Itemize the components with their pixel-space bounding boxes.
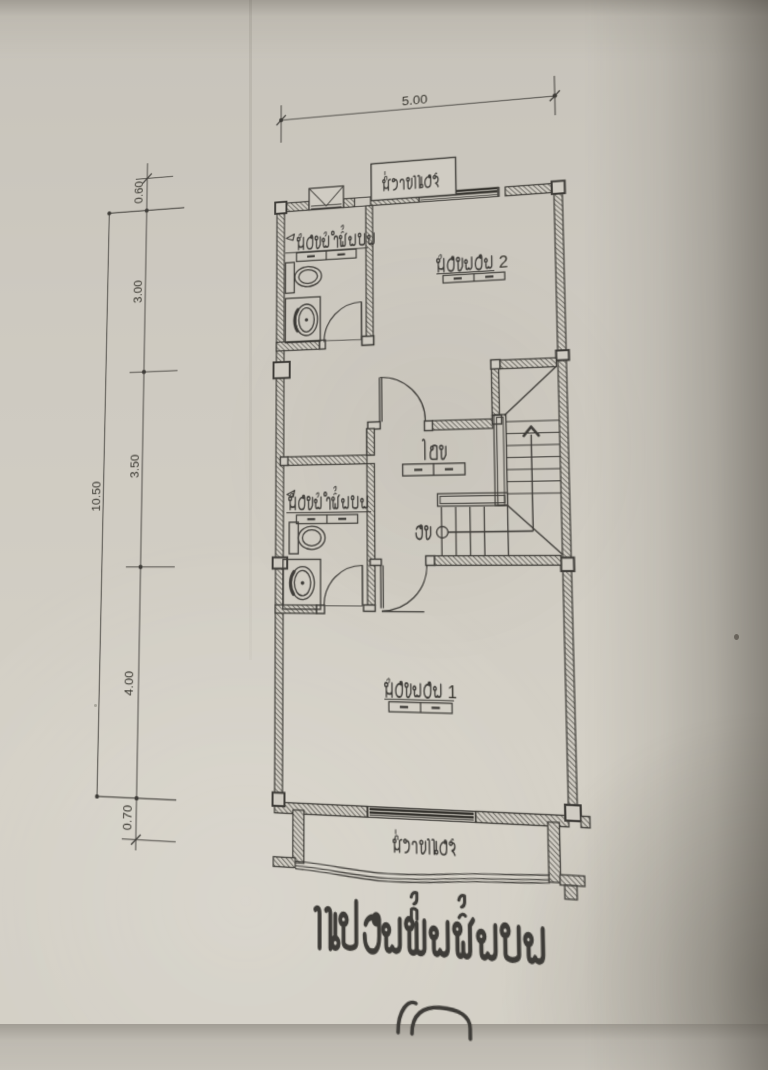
svg-text:0.70: 0.70 (122, 805, 135, 831)
svg-text:5.00: 5.00 (402, 91, 428, 108)
svg-text:3.00: 3.00 (133, 280, 145, 303)
svg-text:3.50: 3.50 (129, 454, 141, 478)
svg-text:0.60: 0.60 (133, 181, 145, 204)
svg-text:4.00: 4.00 (124, 671, 137, 696)
svg-text:2: 2 (499, 255, 508, 273)
svg-text:10.50: 10.50 (91, 481, 103, 511)
